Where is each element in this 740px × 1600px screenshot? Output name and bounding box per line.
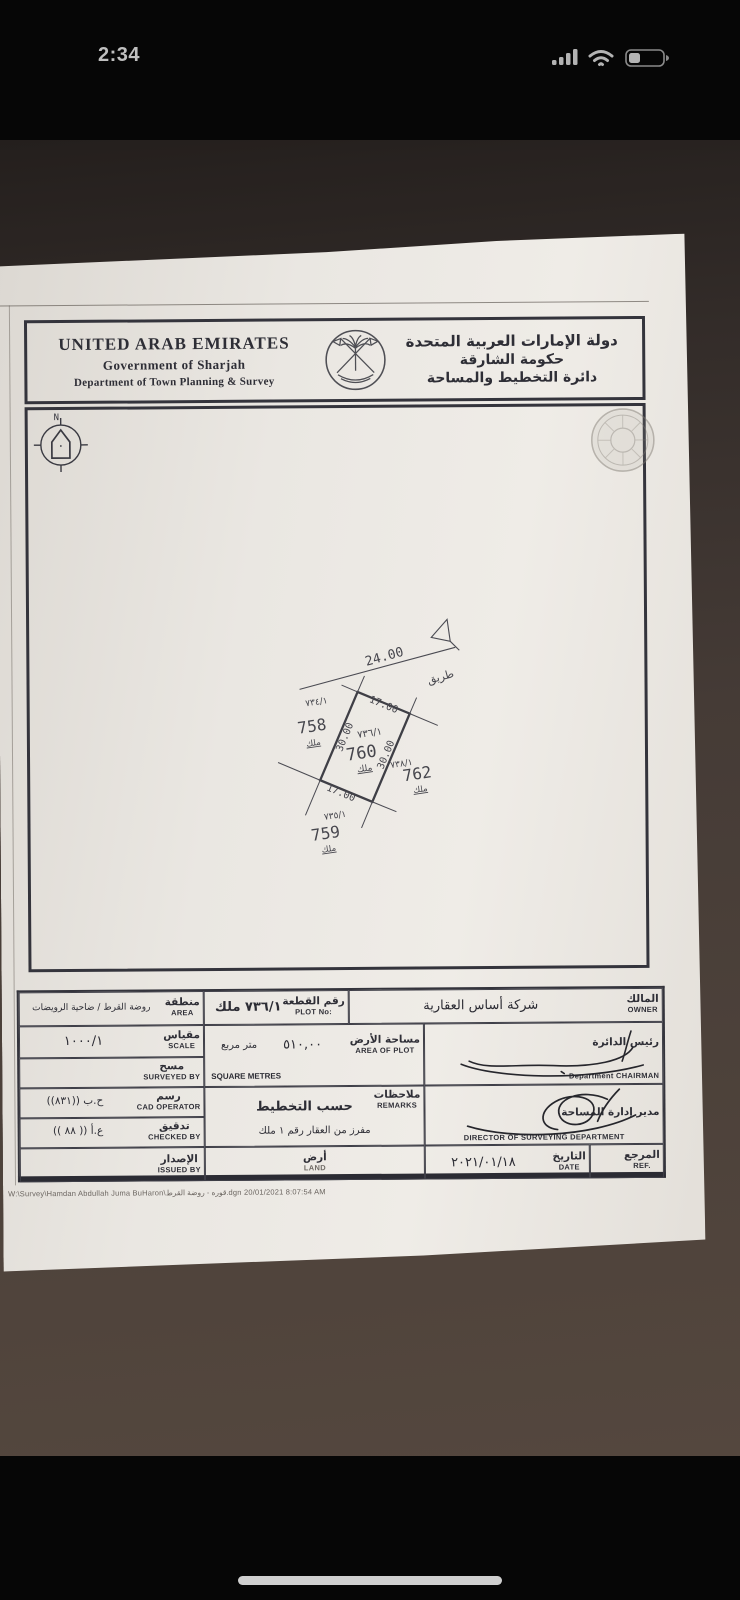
date-cell: التاريخDATE ٢٠٢١/٠١/١٨ [425,1144,590,1179]
phone-screen: 2:34 [0,0,740,1600]
area-label-ar: منطقة [165,997,200,1009]
date-label-ar: التاريخ [552,1151,585,1163]
issued-by-label-en: ISSUED BY [158,1166,201,1175]
government-title-ar: حكومة الشارقة [389,351,634,369]
department-title-en: Department of Town Planning & Survey [27,375,321,389]
road-name-label: طريق [426,667,456,688]
owner-label-ar: المالك [626,994,658,1006]
area-label-en: AREA [165,1009,200,1017]
land-cell: أرضLAND [205,1146,425,1182]
header-arabic: دولة الإمارات العربية المتحدة حكومة الشا… [389,331,634,387]
road-flag-icon [431,619,459,650]
neighbor-number: 759 [310,822,341,845]
plot-drawing: 24.00 طريق 17.00 17.00 30.00 30.00 ٧٣٦/١… [269,599,491,871]
survey-plan-sheet: UNITED ARAB EMIRATES Government of Sharj… [0,228,710,1278]
neighbor-number: 758 [296,715,327,738]
neighbor-tenure: ملك [413,784,429,796]
checked-by-label-en: CHECKED BY [148,1133,201,1142]
checked-by-cell: تدقيقCHECKED BY ع.أ (( ٨٨ )) [20,1117,205,1148]
chairman-signature-cell: رئيس الدائرة Department CHAIRMAN [424,1022,663,1086]
owner-cell: المالكOWNER شركة أساس العقارية [349,988,663,1024]
owner-label-en: OWNER [627,1005,659,1013]
home-indicator[interactable] [238,1576,502,1585]
neighbor-parcel: ٧٣٤/١ [305,696,329,709]
neighbor-parcel: ٧٣٥/١ [323,810,347,823]
plot-no-value: ٧٣٦/١ ملك [209,999,288,1015]
department-title-ar: دائرة التخطيط والمساحة [390,369,635,387]
director-signature-cell: مدير إدارة المساحة DIRECTOR OF SURVEYING… [424,1084,663,1146]
country-title-en: UNITED ARAB EMIRATES [27,333,321,355]
issued-by-value [25,1158,124,1159]
checked-by-value: ع.أ (( ٨٨ )) [25,1125,132,1138]
document-header: UNITED ARAB EMIRATES Government of Sharj… [24,316,646,404]
ref-label-ar: المرجع [624,1150,660,1162]
scale-label-ar: مقياس [163,1030,200,1042]
owner-value: شركة أساس العقارية [370,997,592,1014]
area-of-plot-label-en: AREA OF PLOT [350,1046,420,1055]
chairman-label-ar: رئيس الدائرة [592,1037,659,1049]
scale-cell: مقياسSCALE ١٠٠٠/١ [19,1025,204,1058]
area-cell: منطقةAREA روضة القرط / ضاحية الرويضات [19,991,204,1026]
header-english: UNITED ARAB EMIRATES Government of Sharj… [27,333,321,389]
wifi-icon [590,52,612,65]
country-title-ar: دولة الإمارات العربية المتحدة [389,331,634,351]
scale-label-en: SCALE [163,1042,200,1051]
ref-cell: المرجعREF. [590,1144,664,1179]
area-of-plot-cell: مساحة الأرضAREA OF PLOT ٥١٠,٠٠ متر مربع … [204,1024,424,1088]
north-arrow-icon: N [30,410,92,474]
back-dimension: 17.00 [325,783,357,805]
title-block-table: منطقةAREA روضة القرط / ضاحية الرويضات رق… [17,986,666,1183]
battery-icon [626,50,669,66]
issued-by-cell: الإصدارISSUED BY [20,1147,205,1182]
cellular-signal-icon [552,49,578,65]
director-label-ar: مدير إدارة المساحة [561,1107,659,1119]
cad-operator-label-en: CAD OPERATOR [137,1103,201,1112]
status-bar: 2:34 [0,0,740,90]
surveyed-by-value [24,1066,131,1067]
date-label-en: DATE [553,1163,586,1171]
area-value: روضة القرط / ضاحية الرويضات [22,1002,161,1013]
surveyed-by-cell: مسحSURVEYED BY [19,1057,204,1088]
remarks-line2: مفرز من العقار رقم ١ ملك [216,1125,414,1137]
remarks-cell: ملاحظاتREMARKS حسب التخطيط مفرز من العقا… [204,1086,424,1148]
government-title-en: Government of Sharjah [27,356,321,374]
area-unit-en: SQUARE METRES [211,1072,281,1081]
outer-frame-top-line [0,301,649,307]
neighbor-758-labels: ٧٣٤/١ 758 ملك [294,696,335,750]
land-label-en: LAND [206,1163,424,1173]
plot-number: 760 [345,741,378,765]
file-path-line: W:\Survey\Hamdan Abdullah Juma BuHaron\ق… [8,1186,468,1198]
plot-no-label-ar: رقم القطعة [282,996,345,1008]
area-unit-ar: متر مربع [221,1040,257,1051]
chairman-label-en: Department CHAIRMAN [569,1072,659,1081]
sharjah-emblem-icon [321,325,390,395]
neighbor-tenure: ملك [321,844,337,856]
cad-operator-value: ح.ب ((٨٣١)) [24,1095,125,1108]
embossed-seal-stamp [583,403,664,484]
front-dimension: 17.00 [367,694,399,716]
plot-no-cell: رقم القطعةPLOT No: ٧٣٦/١ ملك [204,990,349,1025]
remarks-line1: حسب التخطيط [225,1099,383,1115]
plot-no-label-en: PLOT No: [282,1008,344,1017]
surveyed-by-label-en: SURVEYED BY [143,1073,200,1082]
scale-value: ١٠٠٠/١ [24,1033,143,1049]
date-value: ٢٠٢١/٠١/١٨ [432,1155,535,1171]
ref-label-en: REF. [624,1161,660,1170]
area-of-plot-value: ٥١٠,٠٠ [283,1037,322,1052]
plot-parcel-number: ٧٣٦/١ [357,726,383,741]
plot-tenure: ملك [356,763,373,775]
director-label-en: DIRECTOR OF SURVEYING DEPARTMENT [429,1133,660,1143]
neighbor-tenure: ملك [306,738,322,750]
outer-frame-left-line [9,305,16,1185]
neighbor-759-labels: ٧٣٥/١ 759 ملك [308,810,351,857]
cad-operator-cell: رسمCAD OPERATOR ح.ب ((٨٣١)) [19,1087,204,1118]
neighbor-number: 762 [401,762,432,785]
clock: 2:34 [98,44,140,67]
status-icons [552,46,682,72]
north-label: N [54,413,59,423]
neighbor-762-labels: ٧٣٨/١ 762 ملك [390,755,435,798]
